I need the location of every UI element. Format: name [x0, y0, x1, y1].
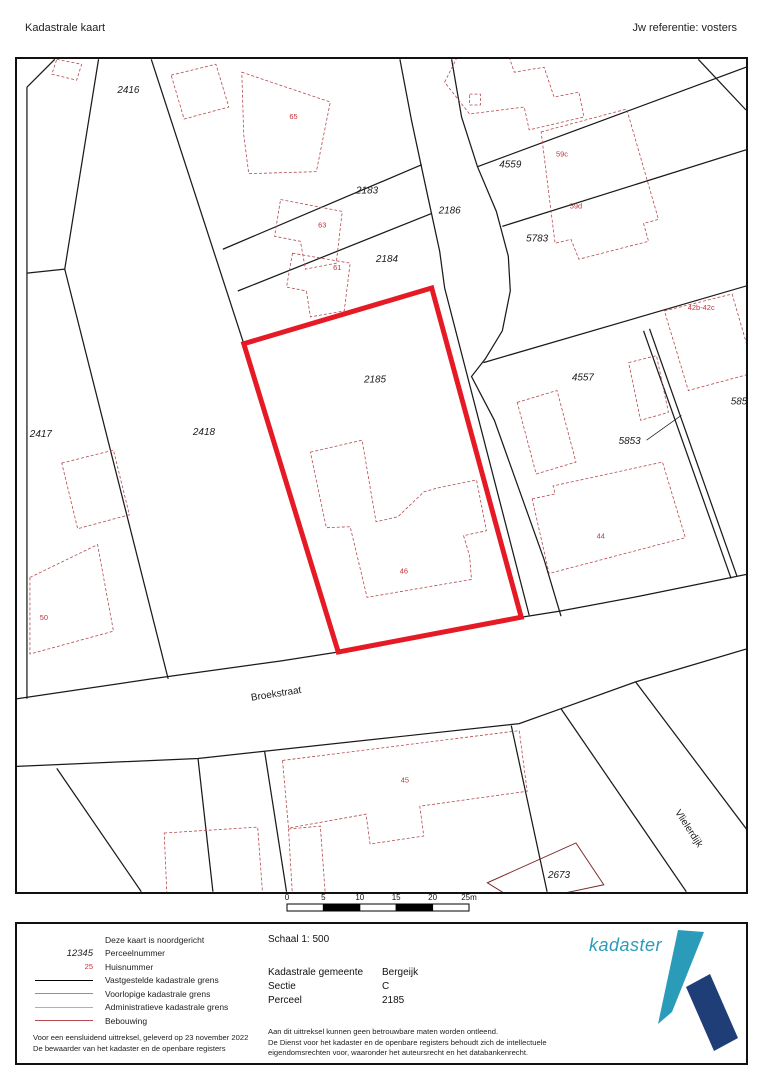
building-outline: [30, 545, 114, 654]
parcel-boundary-line: [57, 768, 142, 891]
parcel-boundary-line: [483, 286, 746, 363]
detail-label: Sectie: [268, 981, 382, 992]
legend-label: Administratieve kadastrale grens: [105, 1002, 228, 1012]
map-svg: 2416218321842186455957832418241721854557…: [17, 59, 746, 892]
building-outline: [275, 200, 343, 270]
legend-item: Administratieve kadastrale grens: [33, 1001, 262, 1015]
parcel-boundary-line: [644, 331, 732, 579]
detail-row: Kadastrale gemeente Bergeijk: [268, 965, 567, 979]
page-title: Kadastrale kaart: [25, 22, 105, 34]
parcel-boundary-line: [561, 709, 686, 892]
parcel-boundary-line: [477, 67, 746, 166]
legend-sample: 12345: [33, 948, 105, 959]
house-number-label: 61: [333, 263, 341, 272]
house-number-label: 65: [289, 112, 297, 121]
legend-line-sample: [35, 980, 93, 981]
scale-bar-tick-label: 0: [285, 893, 290, 902]
detail-label: Perceel: [268, 995, 382, 1006]
scale-text: Schaal 1: 500: [268, 934, 567, 945]
building-outline: [445, 59, 584, 130]
building-outline: [52, 59, 82, 80]
parcel-boundary-line: [198, 758, 213, 891]
parcel-label: 2417: [29, 429, 53, 440]
legend-label: Deze kaart is noordgericht: [105, 935, 204, 945]
kadaster-logo-icon: [651, 926, 756, 1056]
house-number-label: 59c: [556, 150, 568, 159]
parcel-label: 2183: [355, 186, 379, 197]
footnote-line: Voor een eensluidend uittreksel, gelever…: [33, 1032, 248, 1043]
legend-sample: [33, 980, 105, 981]
detail-value: Bergeijk: [382, 967, 418, 978]
reference-text: Jw referentie: vosters: [632, 22, 737, 34]
parcel-label: 4557: [572, 373, 595, 384]
scale-bar: 0510152025m: [265, 891, 495, 919]
parcel-label: 2418: [192, 427, 216, 438]
building-outline: [517, 390, 576, 474]
disclaimer-line: eigendomsrechten voor, waaronder het aut…: [268, 1048, 547, 1059]
parcel-boundary-line: [27, 59, 55, 87]
detail-row: Sectie C: [268, 979, 567, 993]
scale-bar-segment: [396, 904, 432, 911]
disclaimer-line: Aan dit uittreksel kunnen geen betrouwba…: [268, 1027, 547, 1038]
parcel-boundary-line: [511, 726, 547, 892]
parcel-label: 2416: [116, 85, 140, 96]
parcel-boundary-line: [698, 59, 746, 110]
legend-label: Perceelnummer: [105, 948, 165, 958]
house-number-label: 50: [40, 613, 48, 622]
legend-sample: 25: [33, 962, 105, 971]
detail-value: C: [382, 981, 389, 992]
house-number-label: 45: [401, 775, 409, 784]
scale-bar-segment: [433, 904, 469, 911]
scale-bar-tick-label: 25m: [461, 893, 477, 902]
parcel-boundary-line: [452, 59, 561, 616]
scale-bar-tick-label: 15: [392, 893, 401, 902]
legend-item: Voorlopige kadastrale grens: [33, 987, 262, 1001]
parcel-boundary-line: [636, 682, 746, 831]
building-outline: [62, 450, 130, 529]
scale-bar-segment: [323, 904, 359, 911]
legend-line-sample: [35, 993, 93, 994]
disclaimer: Aan dit uittreksel kunnen geen betrouwba…: [268, 1027, 547, 1059]
building-outline: [242, 72, 331, 173]
detail-row: Perceel 2185: [268, 993, 567, 1007]
legend-label: Vastgestelde kadastrale grens: [105, 975, 219, 985]
parcel-boundary-line: [650, 329, 738, 577]
parcel-boundary-line: [151, 59, 243, 343]
legend-line-sample: [35, 1007, 93, 1008]
house-number-label: 46: [400, 566, 408, 575]
parcel-boundary-line: [502, 150, 746, 227]
building-outline: [164, 827, 262, 892]
legend-item: 25Huisnummer: [33, 960, 262, 974]
legend-sample: [33, 993, 105, 994]
parcel-label: 5783: [526, 233, 549, 244]
parcel-label: 2673: [547, 870, 571, 881]
legend-item: Deze kaart is noordgericht: [33, 933, 262, 947]
scale-bar-segment: [287, 904, 323, 911]
detail-value: 2185: [382, 995, 404, 1006]
parcel-boundary-line: [17, 649, 746, 766]
parcel-label: 2186: [438, 205, 462, 216]
kadaster-logo: kadaster: [567, 924, 746, 1063]
legend-item: Vastgestelde kadastrale grens: [33, 974, 262, 988]
scale-bar-segment: [360, 904, 396, 911]
footer-panel: Deze kaart is noordgericht12345Perceelnu…: [15, 922, 748, 1065]
parcel-boundary-line: [65, 269, 168, 679]
building-outline: [289, 826, 326, 892]
legend-label: Voorlopige kadastrale grens: [105, 989, 210, 999]
legend-footnote: Voor een eensluidend uittreksel, gelever…: [33, 1032, 248, 1054]
logo-bar-shape: [686, 974, 738, 1051]
legend: Deze kaart is noordgericht12345Perceelnu…: [17, 924, 262, 1063]
parcel-label: 5853: [619, 436, 642, 447]
legend-sample: [33, 1020, 105, 1021]
building-outline: [541, 109, 658, 259]
street-label: Broekstraat: [250, 685, 302, 704]
parcel-boundary-line: [65, 59, 99, 269]
parcel-label: 2184: [375, 254, 399, 265]
leader-line: [647, 415, 682, 440]
legend-line-sample: [35, 1020, 93, 1021]
house-number-label: 59d: [570, 201, 582, 210]
parcel-boundary-line: [27, 269, 65, 273]
scale-bar-tick-label: 10: [355, 893, 364, 902]
parcel-boundary-line: [223, 165, 422, 250]
legend-label: Bebouwing: [105, 1016, 147, 1026]
street-label: Vlielerdijk: [672, 808, 704, 850]
cadastral-extract-page: Kadastrale kaart Jw referentie: vosters …: [0, 0, 763, 1080]
page-header: Kadastrale kaart Jw referentie: vosters: [25, 22, 737, 34]
building-outline: [283, 731, 528, 844]
building-outline: [532, 462, 685, 573]
house-number-label: 42b-42c: [688, 303, 715, 312]
scale-bar-tick-label: 5: [321, 893, 326, 902]
scale-bar-tick-label: 20: [428, 893, 437, 902]
parcel-boundary-line: [400, 59, 529, 615]
legend-label: Huisnummer: [105, 962, 153, 972]
map-frame: 2416218321842186455957832418241721854557…: [15, 57, 748, 894]
extract-details: Schaal 1: 500 Kadastrale gemeente Bergei…: [262, 924, 567, 1063]
parcel-label: 585: [731, 396, 746, 407]
legend-rows: Deze kaart is noordgericht12345Perceelnu…: [33, 933, 262, 1028]
building-outline: [171, 64, 229, 119]
subject-parcel-outline: [244, 288, 521, 652]
building-outline: [310, 440, 486, 597]
footnote-line: De bewaarder van het kadaster en de open…: [33, 1043, 248, 1054]
detail-label: Kadastrale gemeente: [268, 967, 382, 978]
disclaimer-line: De Dienst voor het kadaster en de openba…: [268, 1038, 547, 1049]
parcel-label: 4559: [499, 160, 522, 171]
parcel-boundary-line: [238, 213, 432, 291]
legend-item: Bebouwing: [33, 1014, 262, 1028]
parcel-label: 2185: [363, 375, 387, 386]
legend-item: 12345Perceelnummer: [33, 947, 262, 961]
building-outline: [470, 94, 481, 105]
house-number-label: 44: [597, 532, 605, 541]
legend-sample: [33, 1007, 105, 1008]
house-number-label: 63: [318, 220, 326, 229]
